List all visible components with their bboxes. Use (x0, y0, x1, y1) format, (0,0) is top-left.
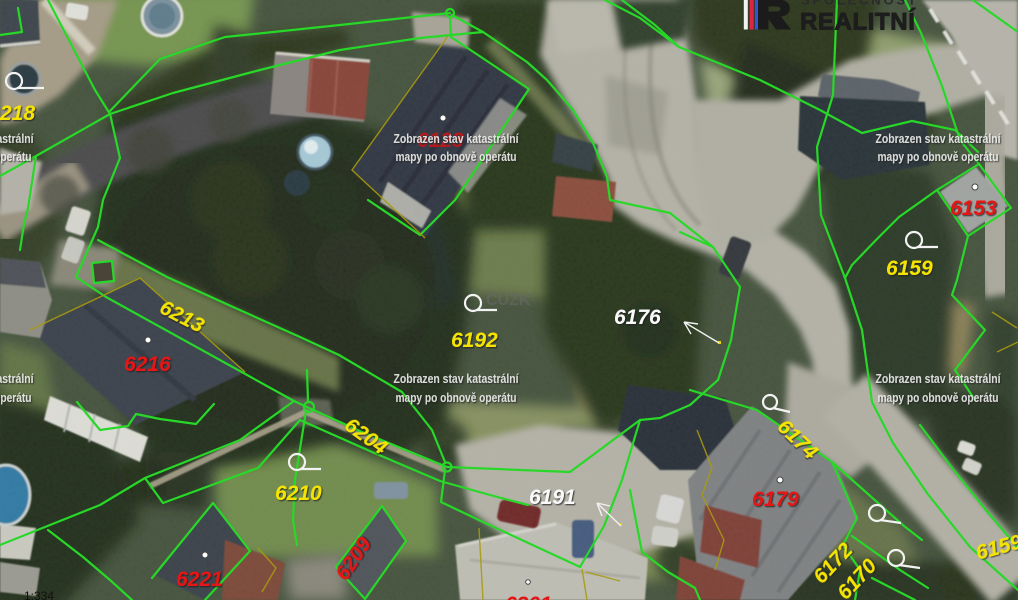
svg-text:6192: 6192 (451, 329, 498, 352)
svg-text:Zobrazen stav katastrální: Zobrazen stav katastrální (0, 132, 34, 146)
svg-text:218: 218 (0, 102, 35, 125)
svg-text:6201: 6201 (505, 593, 552, 600)
svg-text:mapy po obnově operátu: mapy po obnově operátu (396, 150, 517, 164)
svg-text:mapy po obnově operátu: mapy po obnově operátu (878, 391, 999, 405)
svg-text:Zobrazen stav katastrální: Zobrazen stav katastrální (0, 372, 34, 386)
svg-text:ČÚZK: ČÚZK (486, 290, 531, 309)
svg-text:REALITNÍ: REALITNÍ (800, 8, 916, 36)
svg-text:Zobrazen stav katastrální: Zobrazen stav katastrální (394, 372, 519, 386)
svg-text:1:334: 1:334 (24, 589, 54, 600)
svg-text:Zobrazen stav katastrální: Zobrazen stav katastrální (394, 132, 519, 146)
svg-text:mapy po obnově operátu: mapy po obnově operátu (396, 391, 517, 405)
svg-text:6153: 6153 (950, 197, 997, 220)
svg-text:6159: 6159 (886, 257, 933, 280)
svg-text:SPOLEČNOST: SPOLEČNOST (801, 0, 919, 8)
svg-text:6221: 6221 (176, 568, 223, 591)
svg-text:6176: 6176 (614, 306, 661, 329)
svg-text:Zobrazen stav katastrální: Zobrazen stav katastrální (876, 132, 1001, 146)
svg-text:6179: 6179 (752, 488, 799, 511)
svg-text:6216: 6216 (124, 353, 171, 376)
svg-text:6210: 6210 (275, 482, 322, 505)
svg-text:6191: 6191 (529, 486, 576, 509)
svg-text:mapy po obnově operátu: mapy po obnově operátu (878, 150, 999, 164)
svg-text:mapy po obnově operátu: mapy po obnově operátu (0, 391, 32, 405)
svg-text:mapy po obnově operátu: mapy po obnově operátu (0, 150, 32, 164)
svg-text:Zobrazen stav katastrální: Zobrazen stav katastrální (876, 372, 1001, 386)
